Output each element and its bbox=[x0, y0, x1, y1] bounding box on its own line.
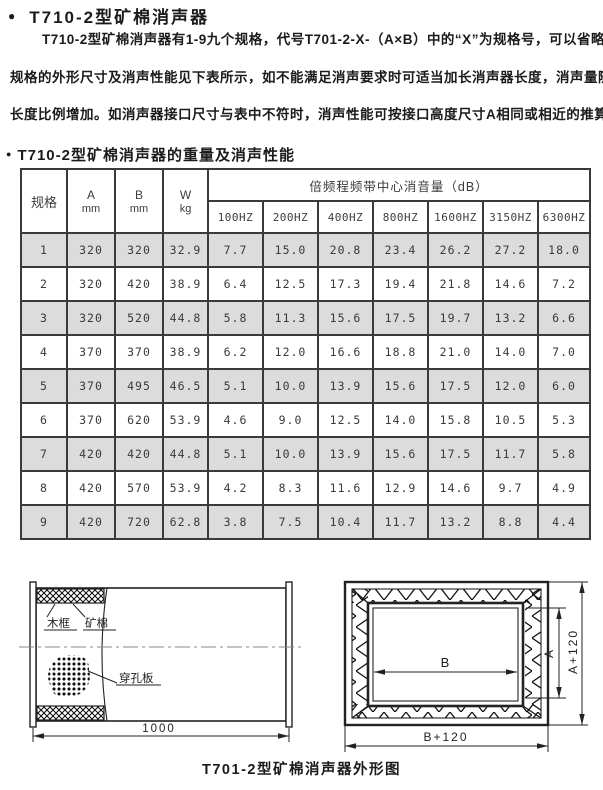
table-cell: 23.4 bbox=[373, 233, 428, 267]
hatch-band-top bbox=[37, 589, 104, 603]
table-cell: 4.6 bbox=[208, 403, 263, 437]
table-row: 537049546.55.110.013.915.617.512.06.0 bbox=[21, 369, 590, 403]
freq-col-header: 1600HZ bbox=[428, 201, 483, 233]
table-cell: 320 bbox=[115, 233, 163, 267]
table-cell: 12.5 bbox=[318, 403, 373, 437]
dim-a120-label: A+120 bbox=[566, 629, 580, 674]
table-cell: 5.8 bbox=[538, 437, 590, 471]
table-cell: 7 bbox=[21, 437, 67, 471]
dim-a-label: A bbox=[542, 650, 556, 658]
label-wool: 矿棉 bbox=[85, 616, 108, 630]
table-cell: 320 bbox=[67, 301, 115, 335]
table-cell: 8.8 bbox=[483, 505, 538, 539]
dim-arrow-right bbox=[278, 733, 289, 739]
freq-group-header: 倍频程频带中心消音量（dB） bbox=[208, 169, 590, 201]
col-header-w-letter: W bbox=[164, 188, 207, 202]
col-header-b-letter: B bbox=[116, 188, 162, 202]
table-cell: 370 bbox=[115, 335, 163, 369]
table-cell: 9.0 bbox=[263, 403, 318, 437]
freq-col-header: 6300HZ bbox=[538, 201, 590, 233]
table-cell: 53.9 bbox=[163, 471, 208, 505]
table-cell: 420 bbox=[115, 437, 163, 471]
table-cell: 8 bbox=[21, 471, 67, 505]
dim-a-arrow-bottom bbox=[556, 687, 561, 698]
table-cell: 1 bbox=[21, 233, 67, 267]
table-cell: 8.3 bbox=[263, 471, 318, 505]
table-cell: 18.0 bbox=[538, 233, 590, 267]
table-cell: 4.4 bbox=[538, 505, 590, 539]
table-cell: 3 bbox=[21, 301, 67, 335]
table-cell: 4.9 bbox=[538, 471, 590, 505]
table-cell: 15.6 bbox=[373, 369, 428, 403]
table-cell: 9 bbox=[21, 505, 67, 539]
table-cell: 5 bbox=[21, 369, 67, 403]
flange-left bbox=[30, 582, 36, 727]
table-cell: 320 bbox=[67, 233, 115, 267]
table-cell: 16.6 bbox=[318, 335, 373, 369]
col-header-a: A mm bbox=[67, 169, 115, 233]
table-cell: 2 bbox=[21, 267, 67, 301]
table-cell: 495 bbox=[115, 369, 163, 403]
intro-line-3: 长度比例增加。如消声器接口尺寸与表中不符时，消声性能可按接口高度尺寸A相同或相近… bbox=[10, 96, 593, 134]
freq-col-header: 800HZ bbox=[373, 201, 428, 233]
table-cell: 11.7 bbox=[373, 505, 428, 539]
table-cell: 7.2 bbox=[538, 267, 590, 301]
freq-col-header: 200HZ bbox=[263, 201, 318, 233]
table-row: 332052044.85.811.315.617.519.713.26.6 bbox=[21, 301, 590, 335]
table-cell: 38.9 bbox=[163, 267, 208, 301]
table-cell: 11.3 bbox=[263, 301, 318, 335]
table-cell: 15.8 bbox=[428, 403, 483, 437]
table-cell: 6.6 bbox=[538, 301, 590, 335]
dim-a120-arrow-bottom bbox=[579, 714, 584, 725]
table-cell: 5.8 bbox=[208, 301, 263, 335]
silencer-front-view-diagram: B A A+120 B+120 bbox=[340, 572, 603, 772]
col-header-b-unit: mm bbox=[116, 203, 162, 215]
silencer-body bbox=[36, 588, 286, 721]
table-cell: 15.6 bbox=[373, 437, 428, 471]
col-header-a-unit: mm bbox=[68, 203, 114, 215]
table-row: 842057053.94.28.311.612.914.69.74.9 bbox=[21, 471, 590, 505]
table-cell: 17.5 bbox=[428, 437, 483, 471]
perforated-patch bbox=[48, 655, 90, 697]
col-header-spec: 规格 bbox=[21, 169, 67, 233]
table-cell: 53.9 bbox=[163, 403, 208, 437]
table-cell: 420 bbox=[67, 471, 115, 505]
table-cell: 6.4 bbox=[208, 267, 263, 301]
table-cell: 12.0 bbox=[483, 369, 538, 403]
bullet-icon: ● bbox=[6, 150, 11, 159]
dim-b120-arrow-right bbox=[537, 743, 548, 748]
table-cell: 21.8 bbox=[428, 267, 483, 301]
hatch-band-bottom bbox=[37, 706, 104, 720]
table-cell: 10.4 bbox=[318, 505, 373, 539]
table-row: 942072062.83.87.510.411.713.28.84.4 bbox=[21, 505, 590, 539]
table-cell: 12.5 bbox=[263, 267, 318, 301]
dim-b-label: B bbox=[441, 655, 450, 670]
table-cell: 44.8 bbox=[163, 437, 208, 471]
table-cell: 19.7 bbox=[428, 301, 483, 335]
table-cell: 38.9 bbox=[163, 335, 208, 369]
table-row: 637062053.94.69.012.514.015.810.55.3 bbox=[21, 403, 590, 437]
table-cell: 4 bbox=[21, 335, 67, 369]
table-cell: 17.5 bbox=[428, 369, 483, 403]
table-cell: 14.0 bbox=[483, 335, 538, 369]
table-cell: 14.0 bbox=[373, 403, 428, 437]
table-cell: 6.0 bbox=[538, 369, 590, 403]
dim-a120-arrow-top bbox=[579, 582, 584, 593]
table-cell: 370 bbox=[67, 403, 115, 437]
table-cell: 720 bbox=[115, 505, 163, 539]
freq-col-header: 400HZ bbox=[318, 201, 373, 233]
col-header-w-unit: kg bbox=[164, 203, 207, 215]
col-header-w: W kg bbox=[163, 169, 208, 233]
table-cell: 13.9 bbox=[318, 437, 373, 471]
flange-right bbox=[286, 582, 292, 727]
table-cell: 5.1 bbox=[208, 437, 263, 471]
table-cell: 13.2 bbox=[428, 505, 483, 539]
table-cell: 4.2 bbox=[208, 471, 263, 505]
table-cell: 7.7 bbox=[208, 233, 263, 267]
freq-col-header: 3150HZ bbox=[483, 201, 538, 233]
dim-b120-arrow-left bbox=[345, 743, 356, 748]
table-cell: 17.5 bbox=[373, 301, 428, 335]
table-cell: 12.9 bbox=[373, 471, 428, 505]
table-cell: 14.6 bbox=[428, 471, 483, 505]
table-row: 232042038.96.412.517.319.421.814.67.2 bbox=[21, 267, 590, 301]
table-cell: 10.0 bbox=[263, 369, 318, 403]
table-cell: 12.0 bbox=[263, 335, 318, 369]
table-row: 132032032.97.715.020.823.426.227.218.0 bbox=[21, 233, 590, 267]
table-cell: 13.2 bbox=[483, 301, 538, 335]
table-cell: 370 bbox=[67, 335, 115, 369]
table-row: 437037038.96.212.016.618.821.014.07.0 bbox=[21, 335, 590, 369]
table-cell: 11.6 bbox=[318, 471, 373, 505]
table-cell: 32.9 bbox=[163, 233, 208, 267]
table-cell: 46.5 bbox=[163, 369, 208, 403]
bullet-icon: ● bbox=[8, 10, 15, 22]
header-row-1: 规格 A mm B mm W kg 倍频程频带中心消音量（dB） bbox=[21, 169, 590, 201]
table-cell: 17.3 bbox=[318, 267, 373, 301]
table-cell: 10.0 bbox=[263, 437, 318, 471]
table-cell: 27.2 bbox=[483, 233, 538, 267]
intro-line-2: 规格的外形尺寸及消声性能见下表所示，如不能满足消声要求时可适当加长消声器长度，消… bbox=[10, 59, 593, 97]
dim-arrow-left bbox=[33, 733, 44, 739]
figure-caption: T701-2型矿棉消声器外形图 bbox=[0, 758, 603, 779]
label-frame: 木框 bbox=[47, 616, 70, 630]
table-cell: 21.0 bbox=[428, 335, 483, 369]
table-cell: 620 bbox=[115, 403, 163, 437]
table-cell: 570 bbox=[115, 471, 163, 505]
label-plate: 穿孔板 bbox=[119, 671, 154, 685]
spec-table-wrap: 规格 A mm B mm W kg 倍频程频带中心消音量（dB） 100HZ20… bbox=[20, 168, 591, 540]
table-cell: 44.8 bbox=[163, 301, 208, 335]
col-header-a-letter: A bbox=[68, 188, 114, 202]
table-cell: 6.2 bbox=[208, 335, 263, 369]
table-row: 742042044.85.110.013.915.617.511.75.8 bbox=[21, 437, 590, 471]
table-cell: 13.9 bbox=[318, 369, 373, 403]
freq-col-header: 100HZ bbox=[208, 201, 263, 233]
table-cell: 520 bbox=[115, 301, 163, 335]
table-cell: 62.8 bbox=[163, 505, 208, 539]
intro-paragraph: T710-2型矿棉消声器有1-9九个规格，代号T701-2-X-（A×B）中的“… bbox=[10, 21, 593, 134]
section-title: ● T710-2型矿棉消声器的重量及消声性能 bbox=[6, 144, 295, 165]
table-cell: 26.2 bbox=[428, 233, 483, 267]
dim-a-arrow-top bbox=[556, 608, 561, 619]
spec-table-body: 132032032.97.715.020.823.426.227.218.023… bbox=[21, 233, 590, 539]
table-cell: 11.7 bbox=[483, 437, 538, 471]
table-cell: 14.6 bbox=[483, 267, 538, 301]
spec-table: 规格 A mm B mm W kg 倍频程频带中心消音量（dB） 100HZ20… bbox=[20, 168, 591, 540]
table-cell: 7.0 bbox=[538, 335, 590, 369]
silencer-side-view-diagram: 木框 矿棉 穿孔板 1000 bbox=[17, 572, 307, 772]
table-cell: 9.7 bbox=[483, 471, 538, 505]
table-cell: 20.8 bbox=[318, 233, 373, 267]
table-cell: 320 bbox=[67, 267, 115, 301]
table-cell: 19.4 bbox=[373, 267, 428, 301]
table-cell: 420 bbox=[115, 267, 163, 301]
table-cell: 370 bbox=[67, 369, 115, 403]
length-dim-label: 1000 bbox=[142, 723, 176, 735]
intro-line-1: T710-2型矿棉消声器有1-9九个规格，代号T701-2-X-（A×B）中的“… bbox=[10, 21, 593, 59]
table-cell: 5.3 bbox=[538, 403, 590, 437]
table-cell: 7.5 bbox=[263, 505, 318, 539]
col-header-b: B mm bbox=[115, 169, 163, 233]
table-cell: 15.6 bbox=[318, 301, 373, 335]
table-cell: 6 bbox=[21, 403, 67, 437]
section-title-text: T710-2型矿棉消声器的重量及消声性能 bbox=[17, 144, 295, 165]
table-cell: 420 bbox=[67, 437, 115, 471]
table-cell: 15.0 bbox=[263, 233, 318, 267]
table-cell: 5.1 bbox=[208, 369, 263, 403]
table-cell: 18.8 bbox=[373, 335, 428, 369]
table-cell: 420 bbox=[67, 505, 115, 539]
table-cell: 3.8 bbox=[208, 505, 263, 539]
dim-b120-label: B+120 bbox=[423, 730, 468, 744]
table-cell: 10.5 bbox=[483, 403, 538, 437]
